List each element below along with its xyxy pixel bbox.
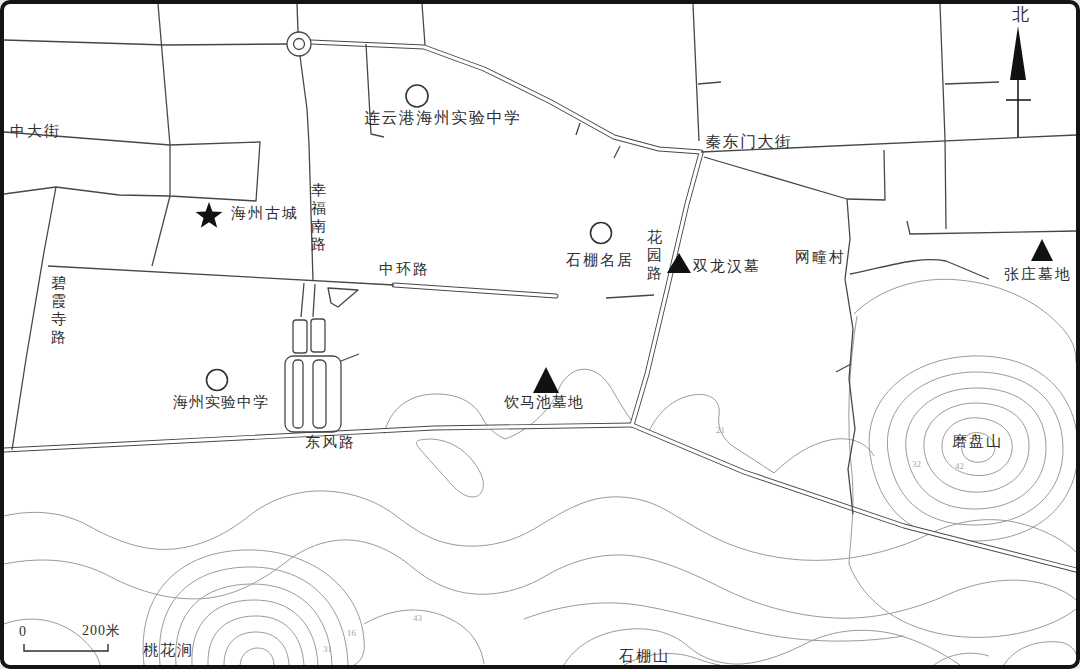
contour-lines (4, 279, 1076, 665)
label-dongfenglu: 东风路 (305, 434, 356, 451)
label-wangtuancun: 网疃村 (795, 249, 846, 266)
scale-bar (24, 644, 108, 651)
label-qindongmen: 秦东门大街 (705, 133, 793, 151)
north-arrow-icon (1006, 26, 1031, 137)
map-canvas: 中大街 连云港海州实验中学 秦东门大街 海州古城 中环路 石棚名居 双龙汉墓 网… (0, 0, 1080, 669)
elevation-mark: 21 (716, 425, 725, 435)
roads (4, 4, 1076, 514)
label-huayuanlu: 花园路 (646, 228, 663, 282)
label-north: 北 (1012, 6, 1029, 25)
label-yinmachimudi: 饮马池墓地 (504, 394, 584, 411)
label-bixiasilu: 碧霞寺路 (50, 274, 67, 346)
label-zhonghuanlu: 中环路 (379, 261, 430, 278)
elevation-mark: 42 (955, 461, 964, 471)
scale-distance: 200米 (82, 622, 121, 640)
label-zhongdajie: 中大街 (10, 123, 61, 140)
label-haizhou-school: 海州实验中学 (173, 394, 269, 411)
circle-marker-lyg-school (406, 85, 428, 107)
label-xingfunanlu: 幸福南路 (310, 181, 327, 253)
roundabout (287, 4, 311, 56)
circle-marker-haizhou-school (207, 370, 228, 391)
triangle-marker-yinmachimudi (533, 367, 559, 393)
triangle-marker-zhangzhuangmudi (1031, 239, 1053, 261)
label-shipengshan: 石棚山 (619, 648, 670, 665)
star-marker-haizhou-gucheng (196, 202, 223, 228)
triangle-marker-shuanglonghanmu (667, 253, 691, 273)
scale-zero: 0 (19, 624, 27, 640)
label-zhangzhuangmudi: 张庄墓地 (1004, 266, 1072, 283)
map-drawing (4, 4, 1076, 665)
label-shipengmingju: 石棚名居 (566, 252, 634, 269)
circle-marker-shipengmingju (591, 223, 612, 244)
elevation-mark: 16 (347, 628, 356, 638)
elevation-mark: 43 (413, 613, 422, 623)
label-haizhou-gucheng: 海州古城 (231, 205, 299, 222)
label-taohuajian: 桃花涧 (143, 642, 194, 659)
elevation-mark: 32 (912, 459, 921, 469)
label-mopanshan: 磨盘山 (952, 433, 1003, 450)
label-shuanglonghanmu: 双龙汉墓 (693, 258, 761, 275)
wide-roads-outline (4, 42, 1076, 570)
label-lyg-school: 连云港海州实验中学 (364, 109, 522, 127)
elevation-mark: 31 (323, 644, 332, 654)
wide-roads-fill (4, 42, 1076, 570)
